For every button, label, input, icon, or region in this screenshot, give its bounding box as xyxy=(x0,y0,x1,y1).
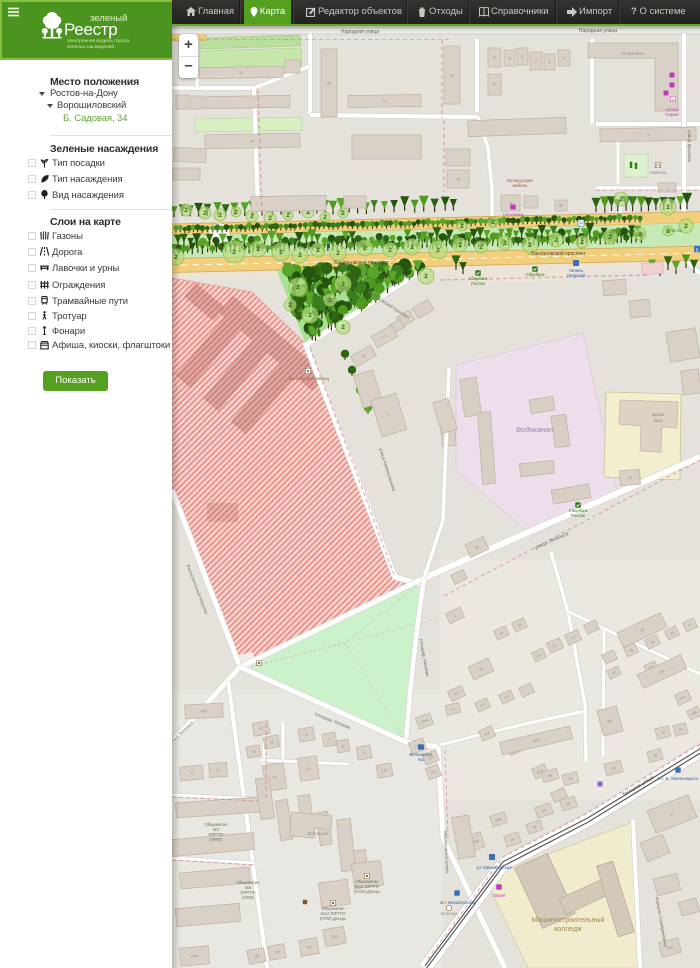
svg-text:2: 2 xyxy=(363,245,367,252)
svg-text:(НПИ): (НПИ) xyxy=(242,895,254,900)
svg-text:2: 2 xyxy=(341,210,345,217)
svg-text:Петровой: Петровой xyxy=(567,273,586,278)
svg-text:2: 2 xyxy=(203,210,207,217)
svg-text:2: 2 xyxy=(638,231,642,238)
svg-text:(НПИ).Донцы: (НПИ).Донцы xyxy=(354,889,380,894)
svg-text:2: 2 xyxy=(619,196,623,203)
svg-text:2: 2 xyxy=(580,239,584,246)
svg-text:2: 2 xyxy=(554,237,558,244)
svg-text:'Норма': 'Норма' xyxy=(665,112,680,117)
svg-text:2: 2 xyxy=(528,242,532,249)
svg-text:54: 54 xyxy=(251,139,255,143)
svg-text:7: 7 xyxy=(535,59,537,63)
svg-text:9: 9 xyxy=(522,55,524,59)
svg-text:2: 2 xyxy=(666,204,670,211)
svg-text:2: 2 xyxy=(218,212,222,219)
svg-text:Колонка: Колонка xyxy=(441,911,458,916)
svg-text:2: 2 xyxy=(479,244,483,251)
svg-text:№1: №1 xyxy=(418,757,425,762)
svg-text:2: 2 xyxy=(234,209,238,216)
svg-text:России: России xyxy=(471,281,485,286)
svg-text:Водоканал: Водоканал xyxy=(516,425,554,434)
svg-text:Школа: Школа xyxy=(652,412,665,417)
svg-text:Народная улица: Народная улица xyxy=(579,28,617,34)
svg-text:2: 2 xyxy=(250,213,254,220)
svg-text:2: 2 xyxy=(256,246,260,253)
svg-text:71: 71 xyxy=(216,768,220,772)
svg-text:Сбербанк: Сбербанк xyxy=(526,272,545,277)
svg-text:2: 2 xyxy=(286,212,290,219)
svg-text:2: 2 xyxy=(308,312,312,319)
svg-text:3: 3 xyxy=(563,56,565,60)
svg-text:2: 2 xyxy=(279,249,283,256)
svg-text:Лилия: Лилия xyxy=(493,893,505,898)
svg-text:2: 2 xyxy=(288,302,292,309)
svg-text:Чайхана: Чайхана xyxy=(650,170,667,175)
svg-text:2: 2 xyxy=(174,254,178,261)
svg-text:колледж: колледж xyxy=(554,926,582,933)
svg-text:15: 15 xyxy=(493,56,497,60)
svg-text:Спортсити: Спортсити xyxy=(622,51,644,56)
svg-text:Народная улица: Народная улица xyxy=(341,29,379,35)
svg-text:2: 2 xyxy=(410,244,414,251)
svg-text:Сетелинка: Сетелинка xyxy=(503,212,524,217)
svg-text:5: 5 xyxy=(549,60,551,64)
svg-text:России: России xyxy=(571,513,585,518)
svg-text:2: 2 xyxy=(684,223,688,230)
svg-text:2: 2 xyxy=(436,247,440,254)
svg-text:2: 2 xyxy=(460,223,464,230)
svg-text:Баклановский проспект→: Баклановский проспект→ xyxy=(334,259,394,266)
svg-text:(НПИ): (НПИ) xyxy=(210,837,222,842)
svg-text:Галинка: Галинка xyxy=(666,228,683,233)
svg-text:2: 2 xyxy=(503,240,507,247)
svg-text:Котельная: Котельная xyxy=(308,831,329,836)
svg-text:2: 2 xyxy=(608,234,612,241)
svg-text:46/1: 46/1 xyxy=(201,709,208,713)
svg-text:2: 2 xyxy=(184,207,188,214)
svg-text:29: 29 xyxy=(450,73,454,77)
svg-text:124А: 124А xyxy=(190,954,199,959)
svg-text:ост. Михайловская: ост. Михайловская xyxy=(440,900,476,905)
svg-text:2: 2 xyxy=(298,252,302,259)
svg-text:2: 2 xyxy=(316,247,320,254)
svg-text:(НПИ).Донцы: (НПИ).Донцы xyxy=(320,916,346,921)
svg-text:2: 2 xyxy=(328,297,332,304)
svg-text:2: 2 xyxy=(268,215,272,222)
svg-text:мебель: мебель xyxy=(513,183,528,188)
svg-text:68: 68 xyxy=(559,204,563,208)
svg-text:45: 45 xyxy=(327,81,331,85)
svg-text:Банк Петрокоммерц: Банк Петрокоммерц xyxy=(289,376,330,381)
svg-text:2: 2 xyxy=(388,247,392,254)
svg-text:Машиностроительный: Машиностроительный xyxy=(532,916,605,924)
svg-text:2: 2 xyxy=(296,284,300,291)
svg-text:13: 13 xyxy=(508,56,512,60)
svg-text:3: 3 xyxy=(647,133,649,137)
svg-text:2: 2 xyxy=(424,273,428,280)
svg-text:улица Крылова: улица Крылова xyxy=(687,130,692,162)
svg-text:37: 37 xyxy=(493,83,497,87)
svg-text:→Баклановский проспект: →Баклановский проспект xyxy=(526,250,586,257)
svg-text:2: 2 xyxy=(341,281,345,288)
svg-text:ул. Михайловская: ул. Михайловская xyxy=(477,865,512,870)
svg-text:ост. Б. Хмельницкого: ост. Б. Хмельницкого xyxy=(658,776,699,781)
svg-text:№14: №14 xyxy=(653,418,663,423)
svg-text:A: A xyxy=(672,97,675,102)
svg-text:B: B xyxy=(695,248,698,253)
svg-text:2: 2 xyxy=(232,249,236,256)
svg-text:75: 75 xyxy=(456,177,460,181)
svg-text:2: 2 xyxy=(323,214,327,221)
svg-text:2: 2 xyxy=(458,242,462,249)
svg-text:51: 51 xyxy=(239,71,243,75)
svg-text:26: 26 xyxy=(628,476,632,480)
svg-text:2: 2 xyxy=(336,250,340,257)
svg-text:11: 11 xyxy=(383,99,387,103)
svg-text:73: 73 xyxy=(189,771,193,775)
svg-text:2: 2 xyxy=(341,324,345,331)
svg-text:2: 2 xyxy=(491,219,495,226)
